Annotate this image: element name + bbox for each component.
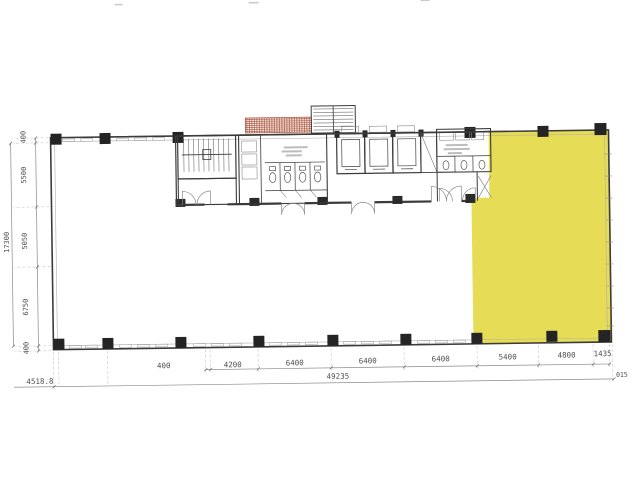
extension-lines-left [13, 138, 52, 351]
dim-total-label: 17300 [3, 232, 11, 253]
equipment-hatch-area [245, 117, 311, 133]
segment-line-left [36, 138, 39, 351]
west-wc-block [239, 134, 328, 204]
dim-label: 400 [22, 342, 30, 355]
highlighted-area [471, 130, 612, 344]
dim-overall-label: 49235 [327, 372, 350, 381]
dim-right-note: 015 [616, 371, 628, 379]
scan-speckles [115, 0, 430, 5]
floor-plan-drawing: 400 5500 5050 6750 400 17300 400 4200 64… [0, 0, 640, 480]
segment-line-bottom [206, 364, 611, 370]
dim-label: 4800 [558, 350, 577, 359]
dim-label: 1435 [594, 349, 612, 358]
vent-boxes [341, 126, 414, 133]
dim-label: 400 [19, 131, 27, 144]
total-line-left [11, 143, 14, 346]
service-shaft-boxes [242, 141, 258, 179]
west-staircase [178, 135, 237, 179]
total-line-bottom [14, 379, 614, 387]
bottom-dimension-chain: 400 4200 6400 6400 6400 5400 4800 1435 4… [14, 344, 628, 390]
dim-label: 5500 [20, 167, 28, 184]
pipe-shaft [421, 132, 438, 172]
dim-label: 5400 [499, 352, 518, 361]
east-wc-room [436, 129, 491, 173]
extension-lines-bottom [54, 344, 613, 389]
dim-label: 6750 [22, 299, 30, 316]
dim-label: 6400 [432, 354, 451, 363]
room-label-smudge [282, 146, 308, 156]
dim-label: 400 [157, 361, 171, 370]
left-dimension-chain: 400 5500 5050 6750 400 17300 [1, 130, 51, 354]
dim-label: 6400 [359, 356, 378, 365]
elevator-cars [342, 139, 416, 170]
wc-fixtures-east [443, 160, 485, 170]
dim-label: 5050 [21, 233, 29, 250]
dim-label: 4200 [224, 360, 243, 369]
core-top-wall [175, 132, 491, 136]
core-west-wall [176, 136, 177, 205]
dim-label: 6400 [286, 358, 305, 367]
north-staircase [311, 105, 355, 133]
dim-left-figure: 4518.8 [26, 377, 54, 386]
room-label-smudge [444, 144, 470, 154]
floor-plan-canvas: 400 5500 5050 6750 400 17300 400 4200 64… [0, 0, 640, 480]
east-vestibule [437, 172, 491, 202]
